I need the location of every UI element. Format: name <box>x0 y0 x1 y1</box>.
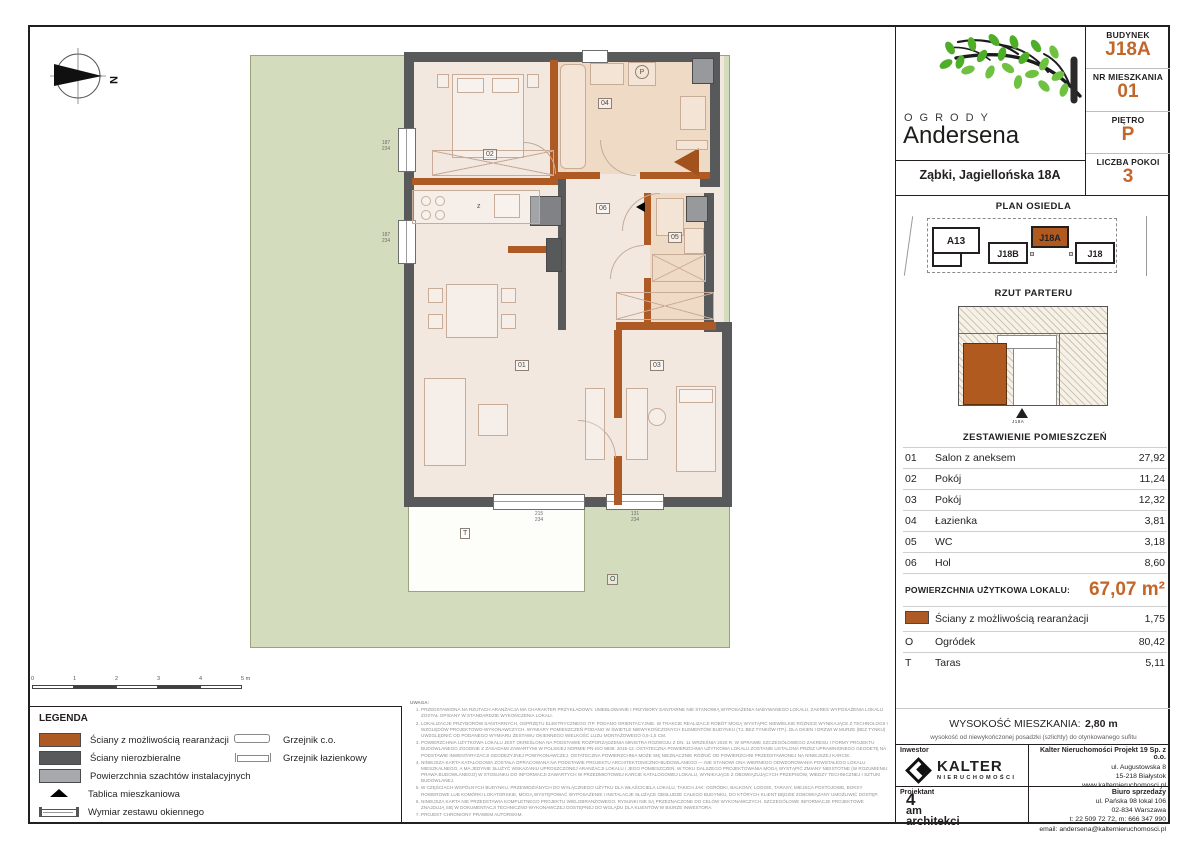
logo-line2: Andersena <box>903 124 1083 148</box>
row-name: WC <box>935 536 1119 548</box>
row-name: Salon z aneksem <box>935 452 1119 464</box>
svg-text:N: N <box>107 76 119 84</box>
legend-label: Grzejnik c.o. <box>283 735 336 746</box>
orange-wall-bedroom-bottom <box>412 178 558 185</box>
table-row: 05 WC 3,18 <box>903 532 1167 553</box>
legend-label: Tablica mieszkaniowa <box>88 789 180 800</box>
row-area: 80,42 <box>1119 636 1165 648</box>
thumb-wall-v <box>1059 333 1060 406</box>
height-label: WYSOKOŚĆ MIESZKANIA: <box>949 718 1080 730</box>
scale-tick: 1 <box>73 676 76 682</box>
row-area: 5,11 <box>1119 657 1165 669</box>
scale-seg-3 <box>116 685 158 689</box>
scale-seg-2 <box>74 685 116 689</box>
row-area: 12,32 <box>1119 494 1165 506</box>
row-name: Pokój <box>935 494 1119 506</box>
window-left-top <box>398 128 416 172</box>
room-table: ZESTAWIENIE POMIESZCZEŃ 01 Salon z aneks… <box>903 432 1167 673</box>
legend-box: LEGENDA Ściany z możliwością rearanżacji… <box>29 706 402 823</box>
north-arrow-icon: N <box>40 42 132 112</box>
scale-tick: 3 <box>157 676 160 682</box>
shaft-swatch <box>39 769 81 783</box>
site-connector-1 <box>1030 252 1034 256</box>
legend-label: Ściany z możliwością rearanżacji <box>90 735 229 746</box>
rearrangeable-wall-swatch <box>39 733 81 747</box>
logo: OGRODY Andersena <box>898 30 1083 158</box>
sofa <box>424 378 466 466</box>
garden-label: O <box>607 574 618 585</box>
window-set-legend-icon <box>39 805 79 819</box>
bath-radiator <box>676 140 708 150</box>
logo-bottom-line <box>896 160 1085 161</box>
floor-plan-card: N T O 187 234 187 234 215 234 131 234 <box>0 0 1200 849</box>
row-name: Taras <box>935 657 1119 669</box>
desk-chair <box>648 408 666 426</box>
rearrangeable-wall-swatch <box>905 611 935 627</box>
site-road-right <box>1146 216 1147 276</box>
sales-line: t: 22 509 72 72, m: 666 347 990 <box>1032 815 1166 824</box>
total-value: 67,07 m² <box>1089 579 1165 601</box>
scale-bar: 0 1 2 3 4 5 m <box>32 676 262 694</box>
investor-label: Inwestor <box>900 747 929 754</box>
kitchen-sink <box>494 194 520 218</box>
coffee-table <box>478 404 508 436</box>
note-item: Niniejsza karta nie przedstawia kompletn… <box>421 799 888 811</box>
orange-wall-salon-room3-1 <box>614 330 622 418</box>
extra-row-garden: O Ogródek 80,42 <box>903 632 1167 653</box>
note-item: Niniejsza karta katalogowa została oprac… <box>421 760 888 785</box>
room-table-title: ZESTAWIENIE POMIESZCZEŃ <box>903 432 1167 443</box>
row-no: 05 <box>905 536 935 548</box>
row-area: 27,92 <box>1119 452 1165 464</box>
window-left-top-mullion <box>406 129 407 171</box>
row-name: Ściany z możliwością rearanżacji <box>935 613 1119 625</box>
dining-table <box>446 284 498 338</box>
towel-radiator-legend-icon <box>234 752 274 764</box>
window-left-bottom-mullion <box>406 221 407 263</box>
info-value: 01 <box>1086 82 1170 102</box>
logo-branch-icon <box>898 30 1083 106</box>
extra-row-walls: Ściany z możliwością rearanżacji 1,75 <box>903 607 1167 632</box>
nightstand-1 <box>437 74 449 88</box>
window-dim-left-top: 187 234 <box>376 141 396 153</box>
notes-list: Przedstawiona na rzutach aranżacja ma ch… <box>410 707 888 818</box>
sink-label: z <box>477 203 481 210</box>
thumb-wall-h <box>959 333 1108 334</box>
radiator-legend-icon <box>234 734 274 746</box>
window-bath-top <box>582 50 608 63</box>
footer-top-line <box>896 744 1170 745</box>
building-label: J18 <box>1087 249 1102 259</box>
floor-thumb <box>958 306 1108 406</box>
height-info: WYSOKOŚĆ MIESZKANIA: 2,80 m wysokość od … <box>895 714 1172 741</box>
row-no: 04 <box>905 515 935 527</box>
tv-sideboard <box>585 388 605 460</box>
table-row: 03 Pokój 12,32 <box>903 490 1167 511</box>
shaft-wc <box>686 196 708 222</box>
notes-block: UWAGA: Przedstawiona na rzutach aranżacj… <box>410 700 888 819</box>
window-left-bottom <box>398 220 416 264</box>
company-line: 15-218 Białystok <box>1032 772 1166 781</box>
shaft-bath <box>692 58 714 84</box>
room-label-02: 02 <box>483 149 497 160</box>
note-item: Przedstawiona na rzutach aranżacja ma ch… <box>421 707 888 719</box>
table-row: 06 Hol 8,60 <box>903 553 1167 574</box>
table-row: 02 Pokój 11,24 <box>903 469 1167 490</box>
building-label: A13 <box>947 236 965 247</box>
room-label-04: 04 <box>598 98 612 109</box>
kalter-diamond-icon <box>906 757 930 781</box>
wc-fixture-1 <box>656 198 684 236</box>
site-plan-title: PLAN OSIEDLA <box>895 201 1172 212</box>
legend-item: Grzejnik c.o. <box>234 731 399 749</box>
company-block: Kalter Nieruchomości Projekt 19 Sp. z o.… <box>1032 747 1166 791</box>
info-row-pietro: PIĘTRO P <box>1086 112 1170 154</box>
nightstand-2 <box>527 74 539 88</box>
window-salon-mullion <box>494 501 584 502</box>
thumb-entrance-marker-icon <box>1016 408 1028 418</box>
room-label-01: 01 <box>515 360 529 371</box>
note-item: Powierzchnia użytkowa lokalu jest określ… <box>421 740 888 759</box>
info-row-pokoje: LICZBA POKOI 3 <box>1086 154 1170 195</box>
note-item: Lokalizacje przyborów sanitarnych, osprz… <box>421 721 888 740</box>
site-connector-2 <box>1069 252 1073 256</box>
wall-bottom-1 <box>404 497 493 507</box>
kalter-sub: NIERUCHOMOŚCI <box>937 775 1016 781</box>
entrance-arrow-icon <box>674 148 699 176</box>
total-label: POWIERZCHNIA UŻYTKOWA LOKALU: <box>905 585 1089 595</box>
row-name: Hol <box>935 557 1119 569</box>
orange-wall-salon-room3-2 <box>614 456 622 505</box>
row-area: 11,24 <box>1119 473 1165 485</box>
thumb-apartment-highlight <box>963 343 1007 405</box>
kalter-name: KALTER <box>937 758 1016 775</box>
wardrobe-hall <box>616 292 714 320</box>
note-item: W częściach wspólnych budynku, przewidzi… <box>421 785 888 797</box>
building-label: J18A <box>1039 233 1061 243</box>
row-area: 1,75 <box>1119 613 1165 625</box>
legend-label: Powierzchnia szachtów instalacyjnych <box>90 771 251 782</box>
chair-3 <box>501 288 516 303</box>
info-value: J18A <box>1086 40 1170 60</box>
table-row: 01 Salon z aneksem 27,92 <box>903 447 1167 469</box>
sales-block: Biuro sprzedaży ul. Pańska 98 lokal 106 … <box>1032 789 1166 834</box>
bathtub <box>560 64 586 169</box>
chair-1 <box>428 288 443 303</box>
wall-top <box>404 52 720 62</box>
wall-left-3 <box>404 264 414 507</box>
stove-burner-4 <box>435 210 445 220</box>
legend-label: Grzejnik łazienkowy <box>283 753 367 764</box>
company-name: Kalter Nieruchomości Projekt 19 Sp. z o.… <box>1032 747 1166 761</box>
info-row-mieszkanie: NR MIESZKANIA 01 <box>1086 69 1170 111</box>
row-area: 3,81 <box>1119 515 1165 527</box>
row-name: Łazienka <box>935 515 1119 527</box>
sales-label: Biuro sprzedaży <box>1032 789 1166 796</box>
kitchen-counter <box>412 190 540 224</box>
structural-wall-swatch <box>39 751 81 765</box>
shaft-kitchen-small <box>546 238 562 272</box>
info-label: PIĘTRO <box>1086 115 1170 125</box>
site-building-a13: A13 <box>932 227 980 254</box>
wall-left-1 <box>404 52 414 128</box>
total-row: POWIERZCHNIA UŻYTKOWA LOKALU: 67,07 m² <box>903 574 1167 607</box>
site-building-j18b: J18B <box>988 242 1028 264</box>
wall-right-room3 <box>722 330 732 507</box>
kalter-wordmark: KALTER NIERUCHOMOŚCI <box>937 758 1016 781</box>
scale-seg-5 <box>200 685 242 689</box>
building-label: J18B <box>997 249 1019 259</box>
height-value: 2,80 m <box>1085 718 1118 730</box>
scale-tick: 0 <box>31 676 34 682</box>
sales-line: 02-834 Warszawa <box>1032 806 1166 815</box>
site-building-j18: J18 <box>1075 242 1115 264</box>
info-board-legend-icon <box>39 789 79 800</box>
pillow-3 <box>679 389 713 403</box>
stove-burner-2 <box>435 196 445 206</box>
company-line: ul. Augustowska 8 <box>1032 763 1166 772</box>
orange-wall-hall-room3 <box>616 322 716 330</box>
row-no: 01 <box>905 452 935 464</box>
row-no: 03 <box>905 494 935 506</box>
row-name: Ogródek <box>935 636 1119 648</box>
scale-tick: 2 <box>115 676 118 682</box>
info-board-icon <box>636 202 645 212</box>
terrace-label: T <box>460 528 470 539</box>
window-dim-salon: 215 234 <box>529 512 549 524</box>
room-label-06: 06 <box>596 203 610 214</box>
row-no: 02 <box>905 473 935 485</box>
row-name: Pokój <box>935 473 1119 485</box>
row-sym: T <box>905 657 935 669</box>
pillow-1 <box>457 78 484 93</box>
wc-cabinet <box>652 254 706 282</box>
apartment-info-box: BUDYNEK J18A NR MIESZKANIA 01 PIĘTRO P L… <box>1086 27 1170 195</box>
sales-line: ul. Pańska 98 lokal 106 <box>1032 797 1166 806</box>
stove-burner-1 <box>421 196 431 206</box>
bath-sink <box>590 63 624 85</box>
chair-4 <box>501 314 516 329</box>
site-building-a13-wing <box>932 252 962 267</box>
footer-v-divider <box>1028 744 1029 824</box>
bath-toilet <box>680 96 706 130</box>
legend-item: Ściany z możliwością rearanżacji <box>39 731 259 749</box>
legend-label: Ściany nierozbieralne <box>90 753 181 764</box>
info-row-budynek: BUDYNEK J18A <box>1086 27 1170 69</box>
wall-bottom-2 <box>585 497 606 507</box>
kalter-logo: KALTER NIERUCHOMOŚCI <box>906 754 1024 784</box>
room-label-05: 05 <box>668 232 682 243</box>
floor-thumb-title: RZUT PARTERU <box>895 288 1172 299</box>
row-area: 8,60 <box>1119 557 1165 569</box>
row-area: 3,18 <box>1119 536 1165 548</box>
window-salon-terrace <box>493 494 585 510</box>
designer-logo: 4 am architekci <box>906 794 960 828</box>
table-row: 04 Łazienka 3,81 <box>903 511 1167 532</box>
orange-wall-bath-bottom-1 <box>558 172 600 179</box>
scale-tick: 5 m <box>241 676 250 682</box>
legend-label: Wymiar zestawu okiennego <box>88 807 204 818</box>
window-dim-room3: 131 234 <box>625 512 645 524</box>
compass: N <box>40 42 132 117</box>
legend-item: Powierzchnia szachtów instalacyjnych <box>39 767 259 785</box>
info-value: P <box>1086 125 1170 145</box>
designer-logo-architekci: architekci <box>906 817 960 829</box>
washer-label-circle: P <box>635 65 649 79</box>
scale-seg-1 <box>32 685 74 689</box>
scale-seg-4 <box>158 685 200 689</box>
chair-2 <box>428 314 443 329</box>
legend-title: LEGENDA <box>39 713 401 724</box>
extra-row-terrace: T Taras 5,11 <box>903 653 1167 673</box>
sales-line: email: andersena@kalternieruchomosci.pl <box>1032 825 1166 834</box>
wc-sink <box>684 228 704 254</box>
row-sym: O <box>905 636 935 648</box>
room-label-03: 03 <box>650 360 664 371</box>
legend-item: Tablica mieszkaniowa <box>39 785 259 803</box>
right-column-divider <box>895 25 896 824</box>
pillow-2 <box>492 78 519 93</box>
height-note: wysokość od niewykończonej posadzki (szl… <box>895 734 1172 741</box>
desk-room3 <box>626 388 648 460</box>
notes-title: UWAGA: <box>410 700 888 706</box>
orange-wall-kitchen-stub <box>508 246 548 253</box>
legend-item: Grzejnik łazienkowy <box>234 749 399 767</box>
site-building-j18a-highlighted: J18A <box>1031 226 1069 248</box>
window-dim-left-bottom: 187 234 <box>376 233 396 245</box>
note-item: Projekt chroniony prawem autorskim. <box>421 812 888 818</box>
row-no: 06 <box>905 557 935 569</box>
legend-item: Wymiar zestawu okiennego <box>39 803 259 821</box>
header-bottom-line <box>896 195 1170 196</box>
project-address: Ząbki, Jagiellońska 18A <box>895 168 1085 182</box>
height-divider <box>896 708 1170 709</box>
thumb-entrance-label: J18A <box>1012 419 1024 424</box>
legend-item: Ściany nierozbieralne <box>39 749 259 767</box>
stove-burner-3 <box>421 210 431 220</box>
info-value: 3 <box>1086 167 1170 187</box>
terrace-area <box>408 505 585 592</box>
scale-tick: 4 <box>199 676 202 682</box>
